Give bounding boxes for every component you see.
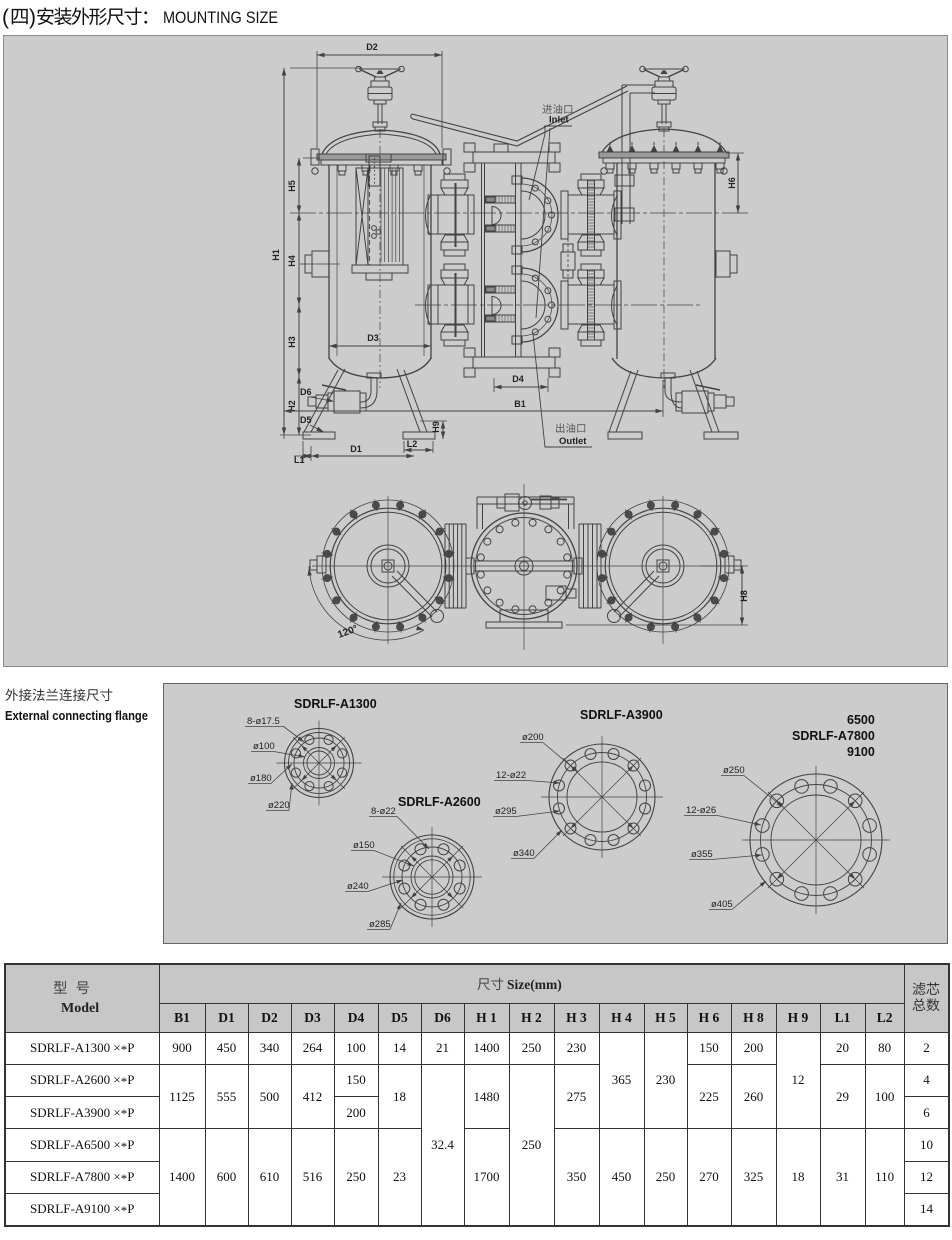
svg-text:ø220: ø220 xyxy=(268,800,290,811)
svg-text:Inlet: Inlet xyxy=(549,115,569,126)
svg-text:8-ø17.5: 8-ø17.5 xyxy=(247,716,280,727)
svg-text:ø285: ø285 xyxy=(369,919,391,930)
svg-text:H5: H5 xyxy=(287,180,297,192)
svg-text:MOUNTING SIZE: MOUNTING SIZE xyxy=(163,8,278,27)
svg-text:Size(mm): Size(mm) xyxy=(507,977,562,992)
svg-text:SDRLF-A1300: SDRLF-A1300 xyxy=(294,697,377,711)
svg-text:H9: H9 xyxy=(431,421,441,433)
svg-text:9100: 9100 xyxy=(847,745,875,759)
svg-text:SDRLF-A2600: SDRLF-A2600 xyxy=(398,795,481,809)
svg-text:ø150: ø150 xyxy=(353,840,375,851)
svg-text:Model: Model xyxy=(61,1001,99,1016)
svg-text:H4: H4 xyxy=(287,255,297,267)
svg-text:ø180: ø180 xyxy=(250,773,272,784)
svg-text:12-ø26: 12-ø26 xyxy=(686,805,716,816)
svg-text:ø295: ø295 xyxy=(495,806,517,817)
svg-text:D5: D5 xyxy=(300,415,312,425)
svg-text:ø340: ø340 xyxy=(513,848,535,859)
svg-text:12-ø22: 12-ø22 xyxy=(496,770,526,781)
svg-text:External connecting flange: External connecting flange xyxy=(5,709,148,723)
svg-text:L2: L2 xyxy=(407,439,418,449)
svg-text:7800: 7800 xyxy=(847,729,875,743)
svg-text:D6: D6 xyxy=(300,387,312,397)
svg-text:ø100: ø100 xyxy=(253,741,275,752)
svg-text:6500: 6500 xyxy=(847,713,875,727)
svg-text:D2: D2 xyxy=(366,42,378,52)
svg-text:8-ø22: 8-ø22 xyxy=(371,806,396,817)
svg-text:H3: H3 xyxy=(287,336,297,348)
svg-text:D4: D4 xyxy=(512,374,524,384)
svg-text:B1: B1 xyxy=(514,399,526,409)
svg-text:H1: H1 xyxy=(271,249,281,261)
svg-text:H6: H6 xyxy=(727,177,737,189)
svg-text:ø200: ø200 xyxy=(522,732,544,743)
svg-text:SDRLF-A3900: SDRLF-A3900 xyxy=(580,708,663,722)
svg-text:ø405: ø405 xyxy=(711,899,733,910)
svg-text:H8: H8 xyxy=(739,590,749,602)
svg-text:(: ( xyxy=(2,6,9,29)
svg-text:D1: D1 xyxy=(350,444,362,454)
svg-text:): ) xyxy=(29,6,36,29)
svg-text:SDRLF-A: SDRLF-A xyxy=(792,729,847,743)
svg-text:ø355: ø355 xyxy=(691,849,713,860)
svg-text:120°: 120° xyxy=(336,623,359,640)
svg-text:ø250: ø250 xyxy=(723,765,745,776)
svg-text:ø240: ø240 xyxy=(347,881,369,892)
svg-text:D3: D3 xyxy=(367,333,379,343)
svg-text:Outlet: Outlet xyxy=(559,436,587,447)
